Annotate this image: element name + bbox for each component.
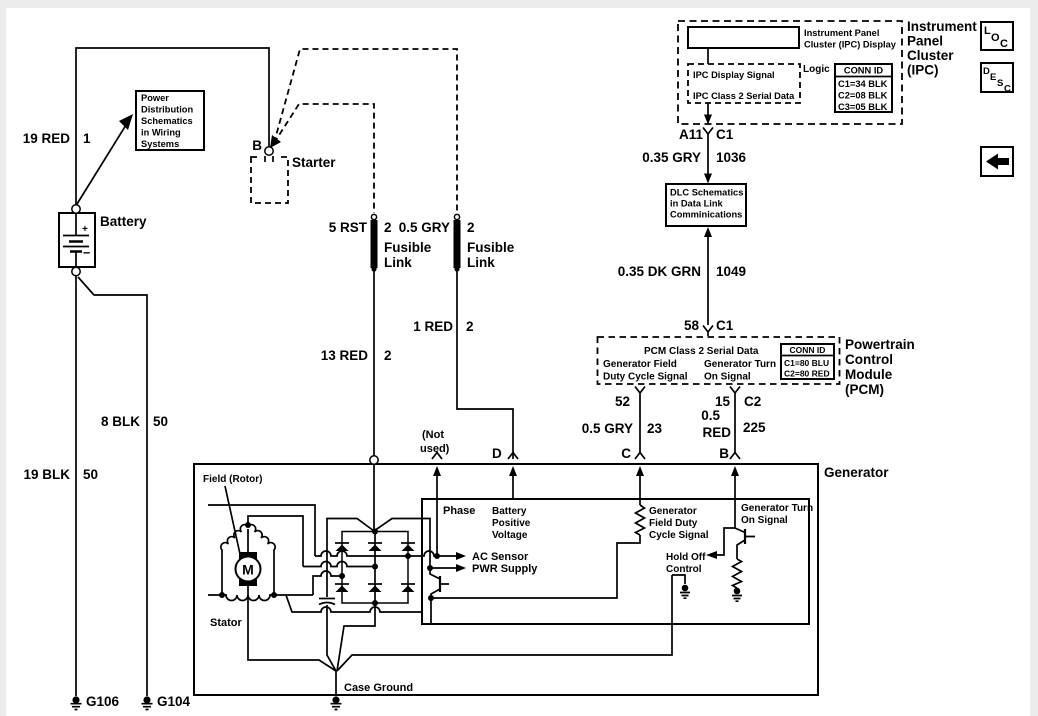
svg-text:0.35 DK GRN: 0.35 DK GRN	[618, 264, 701, 279]
svg-text:Generator Turn: Generator Turn	[704, 359, 776, 370]
svg-text:C2=08 BLK: C2=08 BLK	[838, 91, 888, 101]
svg-text:50: 50	[83, 467, 98, 482]
svg-text:B: B	[719, 446, 729, 461]
svg-text:PCM Class 2 Serial Data: PCM Class 2 Serial Data	[644, 346, 759, 357]
svg-text:Battery: Battery	[100, 214, 147, 229]
svg-text:G106: G106	[86, 694, 120, 709]
svg-text:Link: Link	[467, 255, 495, 270]
svg-text:Generator: Generator	[649, 506, 697, 517]
svg-text:2: 2	[466, 319, 474, 334]
svg-text:Powertrain: Powertrain	[845, 337, 915, 352]
svg-text:23: 23	[647, 421, 663, 436]
svg-text:in Wiring: in Wiring	[141, 128, 181, 138]
svg-text:2: 2	[384, 220, 392, 235]
svg-text:Instrument: Instrument	[907, 19, 977, 34]
svg-text:Cluster: Cluster	[907, 48, 954, 63]
svg-text:IPC Display Signal: IPC Display Signal	[693, 70, 775, 80]
svg-text:Control: Control	[666, 564, 702, 575]
svg-text:L: L	[984, 25, 991, 37]
svg-text:M: M	[242, 562, 254, 578]
svg-text:Duty Cycle Signal: Duty Cycle Signal	[603, 372, 688, 383]
svg-text:1036: 1036	[716, 150, 747, 165]
svg-text:Positive: Positive	[492, 518, 531, 529]
svg-text:in Data Link: in Data Link	[670, 199, 724, 209]
svg-text:Fusible: Fusible	[384, 240, 432, 255]
svg-text:CONN ID: CONN ID	[790, 345, 826, 355]
svg-text:Field (Rotor): Field (Rotor)	[203, 474, 262, 485]
svg-text:0.5 GRY: 0.5 GRY	[399, 220, 450, 235]
svg-text:O: O	[991, 32, 1000, 44]
svg-text:RED: RED	[702, 425, 731, 440]
svg-text:19 BLK: 19 BLK	[23, 467, 70, 482]
svg-text:Cycle Signal: Cycle Signal	[649, 530, 709, 541]
svg-text:Comminications: Comminications	[670, 210, 742, 220]
svg-text:On Signal: On Signal	[741, 515, 788, 526]
svg-text:C1=34 BLK: C1=34 BLK	[838, 79, 888, 89]
svg-text:0.5: 0.5	[701, 408, 720, 423]
svg-text:0.35 GRY: 0.35 GRY	[642, 150, 701, 165]
svg-text:A11: A11	[679, 127, 704, 142]
svg-text:1049: 1049	[716, 264, 746, 279]
svg-text:B: B	[252, 138, 262, 153]
svg-text:Systems: Systems	[141, 139, 179, 149]
svg-text:2: 2	[384, 348, 392, 363]
svg-text:52: 52	[615, 394, 630, 409]
svg-text:Starter: Starter	[292, 155, 336, 170]
svg-text:C2=80 RED: C2=80 RED	[784, 369, 830, 379]
svg-text:C1=80 BLU: C1=80 BLU	[784, 358, 829, 368]
svg-text:AC Sensor: AC Sensor	[472, 551, 529, 563]
svg-text:Stator: Stator	[210, 617, 243, 629]
svg-text:DLC Schematics: DLC Schematics	[670, 188, 743, 198]
svg-text:13 RED: 13 RED	[321, 348, 369, 363]
svg-text:Voltage: Voltage	[492, 530, 528, 541]
svg-text:CONN ID: CONN ID	[844, 66, 884, 76]
svg-text:Phase: Phase	[443, 505, 475, 517]
svg-text:19 RED: 19 RED	[23, 131, 71, 146]
svg-text:Module: Module	[845, 367, 893, 382]
svg-text:Panel: Panel	[907, 34, 943, 49]
svg-text:Case Ground: Case Ground	[344, 682, 413, 694]
svg-text:C: C	[1004, 84, 1011, 95]
svg-text:C: C	[1000, 38, 1008, 50]
svg-text:225: 225	[743, 420, 766, 435]
svg-text:Generator: Generator	[824, 465, 889, 480]
svg-text:D: D	[492, 446, 502, 461]
svg-text:C1: C1	[716, 318, 734, 333]
svg-text:8 BLK: 8 BLK	[101, 414, 140, 429]
svg-text:Fusible: Fusible	[467, 240, 515, 255]
svg-text:C2: C2	[744, 394, 761, 409]
svg-text:On Signal: On Signal	[704, 372, 751, 383]
svg-text:Distribution: Distribution	[141, 105, 193, 115]
svg-text:G104: G104	[157, 694, 191, 709]
svg-text:S: S	[997, 78, 1003, 89]
svg-text:1 RED: 1 RED	[413, 319, 453, 334]
svg-text:Power: Power	[141, 93, 169, 103]
svg-text:1: 1	[83, 131, 91, 146]
svg-text:Schematics: Schematics	[141, 116, 193, 126]
svg-text:E: E	[990, 72, 996, 83]
svg-text:Control: Control	[845, 352, 893, 367]
svg-text:(Not: (Not	[422, 429, 444, 441]
svg-text:Generator Field: Generator Field	[603, 359, 677, 370]
svg-text:used): used)	[420, 443, 450, 455]
svg-text:−: −	[83, 246, 90, 260]
svg-text:C1: C1	[716, 127, 734, 142]
svg-text:Link: Link	[384, 255, 412, 270]
svg-text:C3=05 BLK: C3=05 BLK	[838, 102, 888, 112]
svg-text:50: 50	[153, 414, 168, 429]
svg-text:+: +	[82, 224, 88, 235]
svg-text:Battery: Battery	[492, 506, 527, 517]
svg-text:IPC Class 2 Serial Data: IPC Class 2 Serial Data	[693, 91, 795, 101]
svg-text:Field Duty: Field Duty	[649, 518, 698, 529]
svg-text:PWR Supply: PWR Supply	[472, 563, 538, 575]
svg-text:0.5 GRY: 0.5 GRY	[582, 421, 633, 436]
svg-text:58: 58	[684, 318, 700, 333]
svg-text:Generator Turn: Generator Turn	[741, 503, 813, 514]
svg-text:Hold Off: Hold Off	[666, 552, 706, 563]
svg-text:Logic: Logic	[803, 64, 830, 75]
svg-text:2: 2	[467, 220, 475, 235]
svg-text:C: C	[621, 446, 631, 461]
svg-text:15: 15	[715, 394, 731, 409]
svg-text:D: D	[983, 66, 990, 77]
svg-text:(PCM): (PCM)	[845, 382, 884, 397]
svg-text:Cluster (IPC) Display: Cluster (IPC) Display	[804, 40, 897, 50]
svg-text:5 RST: 5 RST	[329, 220, 368, 235]
svg-text:Instrument Panel: Instrument Panel	[804, 28, 879, 38]
svg-text:(IPC): (IPC)	[907, 63, 939, 78]
